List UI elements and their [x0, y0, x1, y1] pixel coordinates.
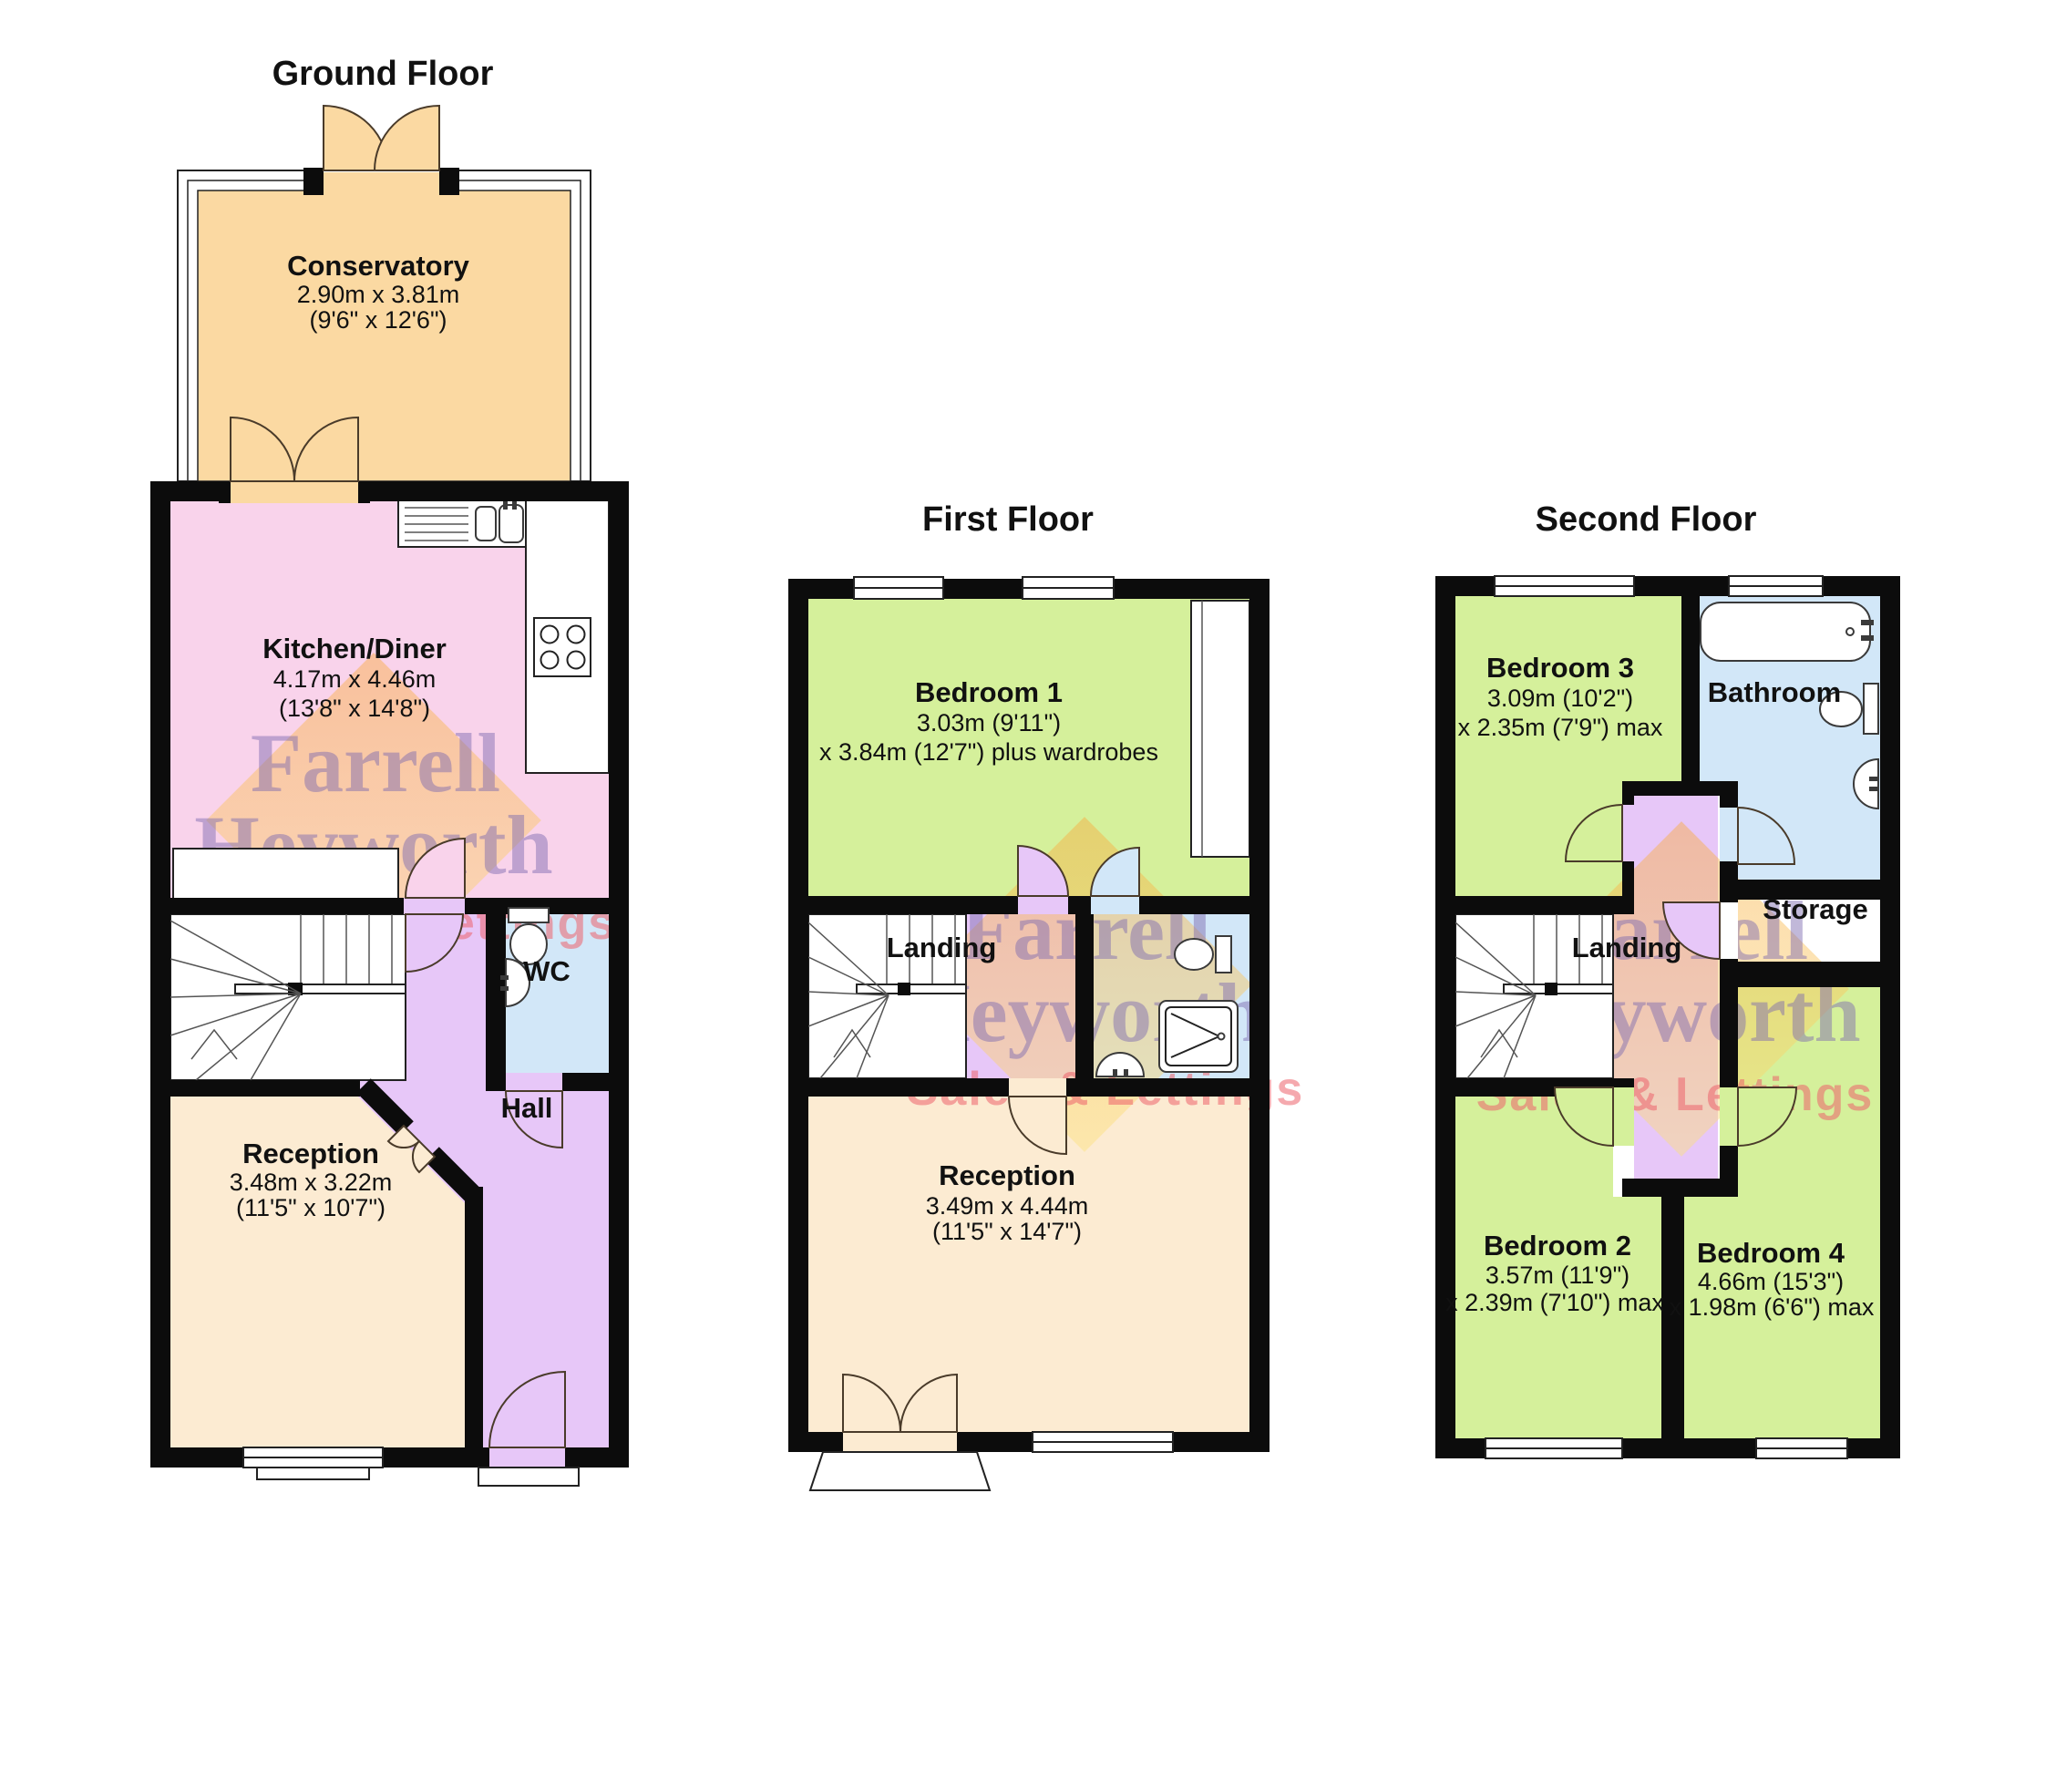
bedroom1-dim-imperial: x 3.84m (12'7") plus wardrobes [819, 738, 1158, 766]
bedroom1-label: Bedroom 1 [915, 676, 1063, 708]
bedroom3-label: Bedroom 3 [1486, 652, 1634, 684]
second-bathroom-door-opening [1720, 808, 1738, 861]
watermark-word1: Farrell [251, 716, 500, 809]
wc-door-opening [506, 1073, 562, 1091]
bedroom2-dim-metric: 3.57m (11'9") [1485, 1262, 1629, 1289]
first-reception-window [1033, 1432, 1173, 1452]
french-doors-opening [843, 1432, 957, 1452]
ground-stairs [170, 914, 406, 1080]
first-reception-door-opening [1009, 1078, 1066, 1097]
conservatory-garden-door-right [375, 106, 439, 170]
conservatory-label: Conservatory [287, 250, 470, 282]
bedroom2-label: Bedroom 2 [1484, 1230, 1631, 1262]
bedroom3-dim-metric: 3.09m (10'2") [1487, 685, 1633, 712]
bedroom1-dim-metric: 3.03m (9'11") [917, 709, 1061, 736]
conservatory-dim-metric: 2.90m x 3.81m [297, 281, 460, 308]
second-floor-title: Second Floor [1536, 500, 1757, 539]
kitchen-hall-opening [404, 898, 465, 914]
bedroom4-dim-metric: 4.66m (15'3") [1698, 1268, 1844, 1295]
wc-label: WC [523, 955, 571, 987]
floorplan-image: Farrell Heyworth Sales & Lettings Farrel… [0, 0, 2056, 1792]
ground-reception-window [243, 1447, 383, 1479]
second-bedroom3-room-lower [1455, 596, 1622, 914]
second-bathroom-label: Bathroom [1708, 676, 1841, 708]
floorplan-canvas: Farrell Heyworth Sales & Lettings Farrel… [0, 0, 2056, 1792]
first-bathroom-toilet [1175, 936, 1231, 973]
front-door-opening [489, 1447, 565, 1468]
front-door-step [478, 1468, 579, 1486]
bedroom2-door-opening [1613, 1087, 1634, 1146]
ground-reception-dim-metric: 3.48m x 3.22m [230, 1169, 393, 1196]
door-jamb [439, 168, 459, 195]
bedroom4-label: Bedroom 4 [1697, 1237, 1845, 1269]
first-reception-dim-metric: 3.49m x 4.44m [926, 1192, 1089, 1220]
conservatory-kitchen-opening [231, 479, 358, 503]
first-floor-title: First Floor [922, 500, 1094, 539]
kitchen-dim-imperial: (13'8" x 14'8") [279, 695, 430, 722]
french-doors-step [810, 1452, 990, 1490]
second-landing-label: Landing [1572, 932, 1682, 963]
bedroom4-dim-imperial: x 1.98m (6'6") max [1670, 1293, 1875, 1321]
bedroom2-dim-imperial: x 2.39m (7'10") max [1445, 1289, 1664, 1316]
first-bathroom-shower [1159, 1001, 1238, 1072]
bedroom4-door-opening [1720, 1087, 1738, 1146]
first-wardrobe [1191, 601, 1249, 857]
kitchen-sink [398, 500, 526, 547]
second-bathroom-bath [1701, 602, 1874, 661]
kitchen-hob [534, 618, 591, 676]
kitchen-cupboard [173, 849, 398, 899]
hall-label: Hall [501, 1092, 553, 1124]
first-reception-label: Reception [939, 1159, 1075, 1191]
storage-door-opening [1720, 902, 1738, 959]
door-jamb [303, 168, 324, 195]
bedroom1-door-opening [1018, 896, 1068, 914]
kitchen-dim-metric: 4.17m x 4.46m [273, 665, 437, 693]
conservatory-dim-imperial: (9'6" x 12'6") [309, 306, 447, 334]
ground-reception-label: Reception [242, 1138, 379, 1169]
ensuite-door-opening [1091, 896, 1139, 914]
first-landing-label: Landing [887, 932, 997, 963]
first-reception-dim-imperial: (11'5" x 14'7") [932, 1218, 1082, 1245]
kitchen-label: Kitchen/Diner [262, 633, 447, 664]
ground-reception-dim-imperial: (11'5" x 10'7") [236, 1194, 385, 1221]
bedroom3-door-opening [1622, 805, 1634, 861]
storage-label: Storage [1763, 893, 1867, 925]
bedroom3-dim-imperial: x 2.35m (7'9") max [1458, 714, 1663, 741]
ground-floor-title: Ground Floor [272, 55, 494, 93]
